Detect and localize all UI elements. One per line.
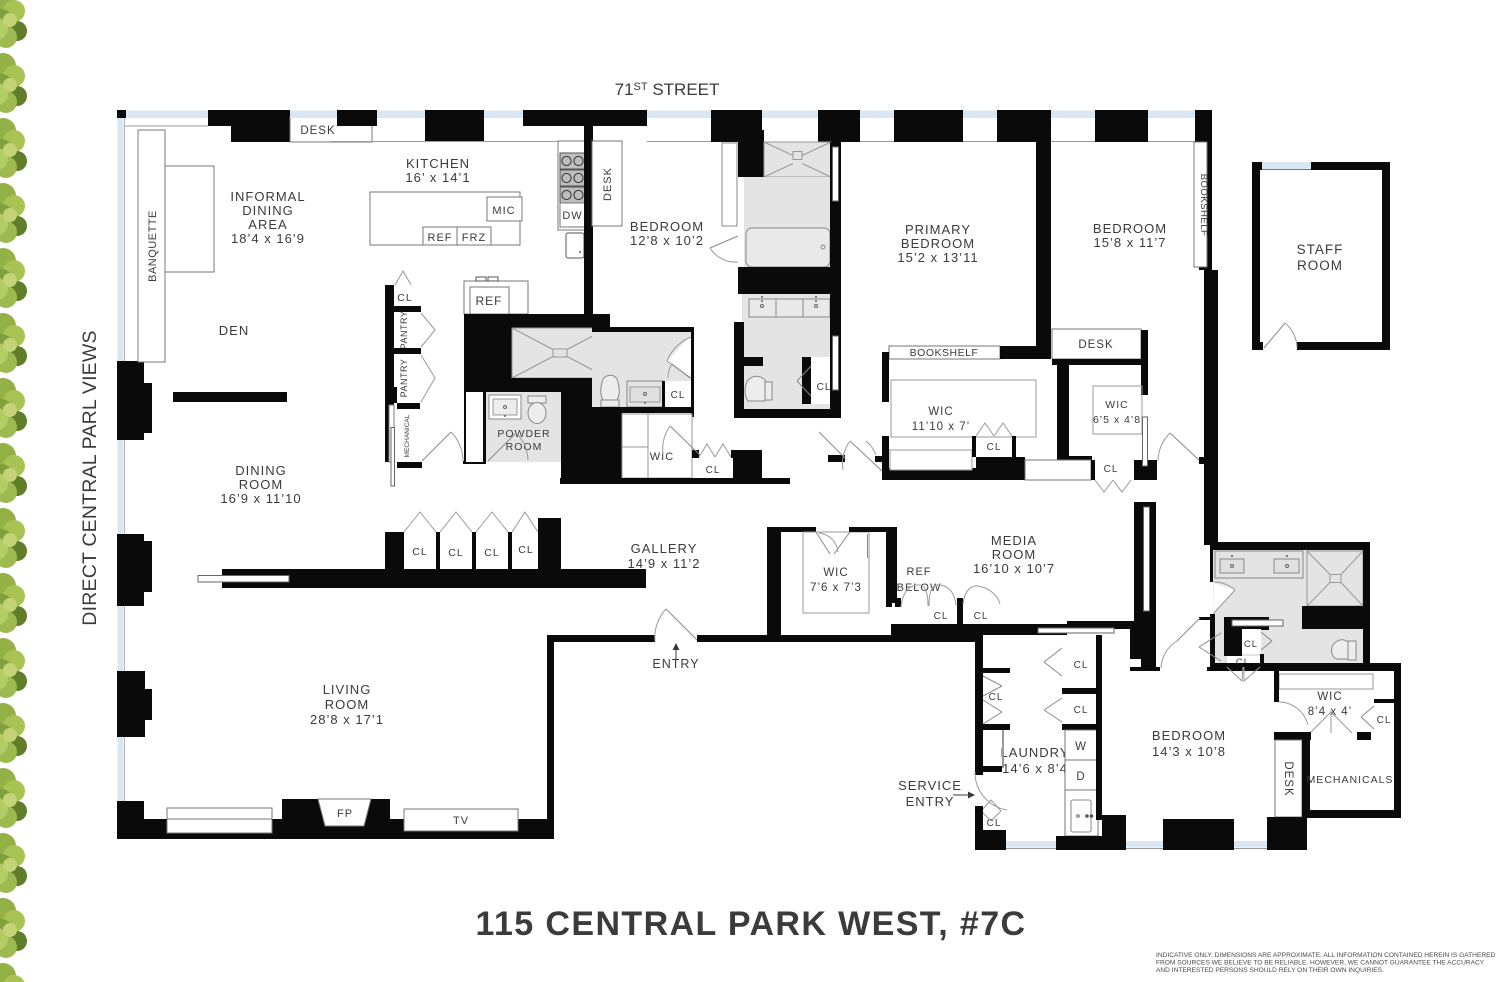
svg-text:CL: CL — [987, 818, 1002, 829]
svg-text:W: W — [1075, 741, 1087, 753]
svg-text:CL: CL — [1104, 464, 1119, 475]
svg-text:28’8 x 17’1: 28’8 x 17’1 — [310, 712, 384, 727]
svg-text:CL: CL — [412, 546, 427, 558]
svg-text:15’2 x 13’11: 15’2 x 13’11 — [897, 250, 978, 265]
svg-text:WIC: WIC — [650, 451, 674, 463]
svg-text:ROOM: ROOM — [325, 697, 369, 712]
svg-text:AND INTERESTED PERSONS SHOULD: AND INTERESTED PERSONS SHOULD RELY ON TH… — [1156, 967, 1384, 974]
svg-text:BOOKSHELF: BOOKSHELF — [910, 347, 979, 359]
svg-text:TV: TV — [453, 815, 469, 827]
svg-text:DEN: DEN — [219, 323, 249, 338]
svg-text:WIC: WIC — [1105, 399, 1128, 411]
svg-text:CL: CL — [397, 292, 412, 304]
svg-text:REF: REF — [907, 566, 932, 578]
svg-text:ROOM: ROOM — [992, 547, 1036, 562]
svg-text:WIC: WIC — [823, 567, 848, 579]
svg-text:DINING: DINING — [242, 203, 294, 218]
svg-text:LIVING: LIVING — [323, 682, 372, 697]
svg-text:FROM SOURCES WE BELIEVE TO BE: FROM SOURCES WE BELIEVE TO BE RELIABLE. … — [1156, 960, 1485, 967]
svg-text:8’4 x 4’: 8’4 x 4’ — [1308, 706, 1352, 718]
svg-text:DESK: DESK — [602, 167, 614, 201]
svg-text:DIRECT CENTRAL PARL VIEWS: DIRECT CENTRAL PARL VIEWS — [79, 330, 101, 625]
svg-text:ENTRY: ENTRY — [652, 657, 699, 671]
svg-text:BEDROOM: BEDROOM — [1093, 221, 1167, 236]
svg-text:CL: CL — [987, 442, 1002, 453]
svg-text:14’9 x 11’2: 14’9 x 11’2 — [628, 556, 701, 571]
svg-text:12’8 x 10’2: 12’8 x 10’2 — [630, 233, 704, 248]
svg-text:DESK: DESK — [1078, 339, 1113, 351]
svg-text:DW: DW — [562, 210, 582, 222]
svg-text:CL: CL — [934, 611, 949, 622]
svg-text:MECHANICAL: MECHANICAL — [404, 414, 411, 457]
svg-text:GALLERY: GALLERY — [631, 541, 698, 556]
svg-text:AREA: AREA — [248, 217, 287, 232]
svg-text:WIC: WIC — [928, 406, 953, 418]
svg-text:CL: CL — [817, 382, 832, 393]
svg-text:ENTRY: ENTRY — [906, 794, 955, 809]
svg-text:16’10 x 10’7: 16’10 x 10’7 — [973, 561, 1055, 576]
svg-text:BANQUETTE: BANQUETTE — [147, 210, 159, 282]
svg-text:CL: CL — [989, 692, 1004, 703]
svg-text:BEDROOM: BEDROOM — [901, 236, 975, 251]
svg-text:6’5 x 4’8: 6’5 x 4’8 — [1093, 414, 1141, 426]
svg-text:71ST STREET: 71ST STREET — [615, 80, 720, 99]
svg-text:POWDER: POWDER — [497, 428, 550, 440]
svg-text:CL: CL — [671, 390, 686, 401]
svg-text:DESK: DESK — [1282, 761, 1294, 796]
svg-text:D: D — [1076, 771, 1085, 783]
svg-text:CL: CL — [974, 611, 989, 622]
svg-text:DINING: DINING — [235, 463, 287, 478]
svg-text:11’10 x 7’: 11’10 x 7’ — [912, 421, 970, 433]
svg-text:16’9 x 11’10: 16’9 x 11’10 — [220, 491, 301, 506]
svg-text:KITCHEN: KITCHEN — [406, 156, 470, 171]
svg-text:CL: CL — [1377, 715, 1392, 726]
svg-text:INFORMAL: INFORMAL — [230, 189, 305, 204]
svg-text:7’6 x 7’3: 7’6 x 7’3 — [810, 582, 862, 594]
svg-text:CL: CL — [448, 547, 463, 559]
svg-text:CL: CL — [1244, 639, 1258, 650]
svg-text:PANTRY: PANTRY — [399, 359, 409, 398]
svg-text:WIC: WIC — [1317, 691, 1342, 703]
svg-text:CL: CL — [1074, 705, 1089, 716]
svg-text:ROOM: ROOM — [239, 477, 283, 492]
svg-text:BELOW: BELOW — [897, 582, 942, 594]
svg-text:PANTRY: PANTRY — [399, 311, 409, 350]
svg-text:16’ x 14’1: 16’ x 14’1 — [405, 170, 470, 185]
svg-text:FRZ: FRZ — [462, 232, 486, 244]
svg-text:BEDROOM: BEDROOM — [1152, 728, 1226, 743]
svg-text:115 CENTRAL PARK WEST, #7C: 115 CENTRAL PARK WEST, #7C — [476, 905, 1027, 943]
svg-text:PRIMARY: PRIMARY — [905, 222, 971, 237]
svg-text:CL: CL — [1074, 660, 1089, 671]
svg-text:ROOM: ROOM — [1297, 258, 1343, 273]
svg-text:CL: CL — [706, 465, 721, 476]
svg-text:MECHANICALS: MECHANICALS — [1307, 774, 1394, 786]
svg-text:REF: REF — [428, 232, 453, 244]
svg-text:STAFF: STAFF — [1297, 242, 1344, 257]
svg-text:SERVICE: SERVICE — [898, 778, 962, 793]
svg-text:15’8 x 11’7: 15’8 x 11’7 — [1094, 235, 1167, 250]
svg-text:CL: CL — [518, 544, 533, 556]
svg-text:INDICATIVE ONLY. DIMENSIONS AR: INDICATIVE ONLY. DIMENSIONS ARE APPROXIM… — [1156, 952, 1496, 959]
svg-text:LAUNDRY: LAUNDRY — [1001, 745, 1070, 760]
svg-text:14’6 x 8’4: 14’6 x 8’4 — [1002, 761, 1068, 776]
svg-text:14’3 x 10’8: 14’3 x 10’8 — [1152, 744, 1226, 759]
svg-text:18’4 x 16’9: 18’4 x 16’9 — [231, 231, 305, 246]
svg-text:FP: FP — [337, 808, 353, 820]
svg-text:BEDROOM: BEDROOM — [630, 219, 704, 234]
svg-text:REF: REF — [476, 294, 503, 308]
svg-text:MEDIA: MEDIA — [991, 533, 1037, 548]
svg-text:DESK: DESK — [300, 125, 335, 137]
svg-text:MIC: MIC — [492, 205, 515, 217]
svg-text:CL: CL — [484, 547, 499, 559]
svg-text:BOOKSHELF: BOOKSHELF — [1198, 174, 1209, 237]
